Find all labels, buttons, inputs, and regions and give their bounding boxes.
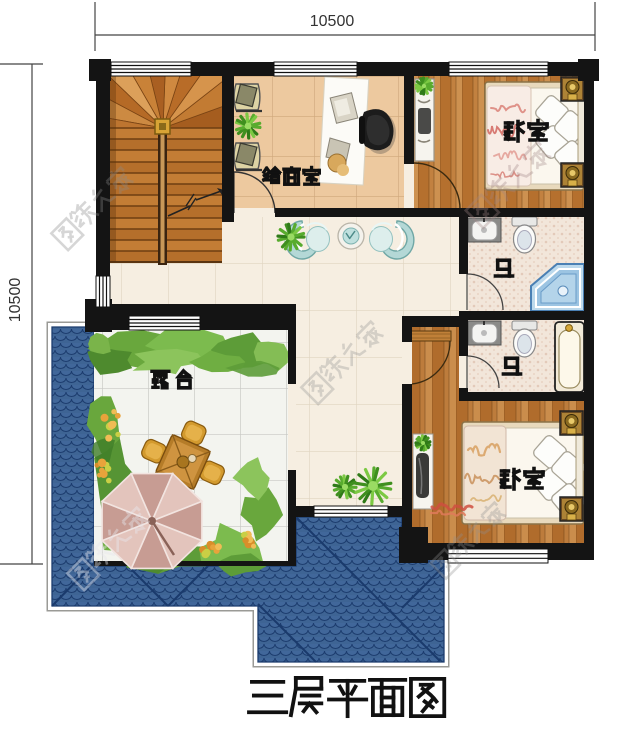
svg-text:10500: 10500 bbox=[7, 278, 24, 323]
svg-text:10500: 10500 bbox=[310, 13, 355, 30]
